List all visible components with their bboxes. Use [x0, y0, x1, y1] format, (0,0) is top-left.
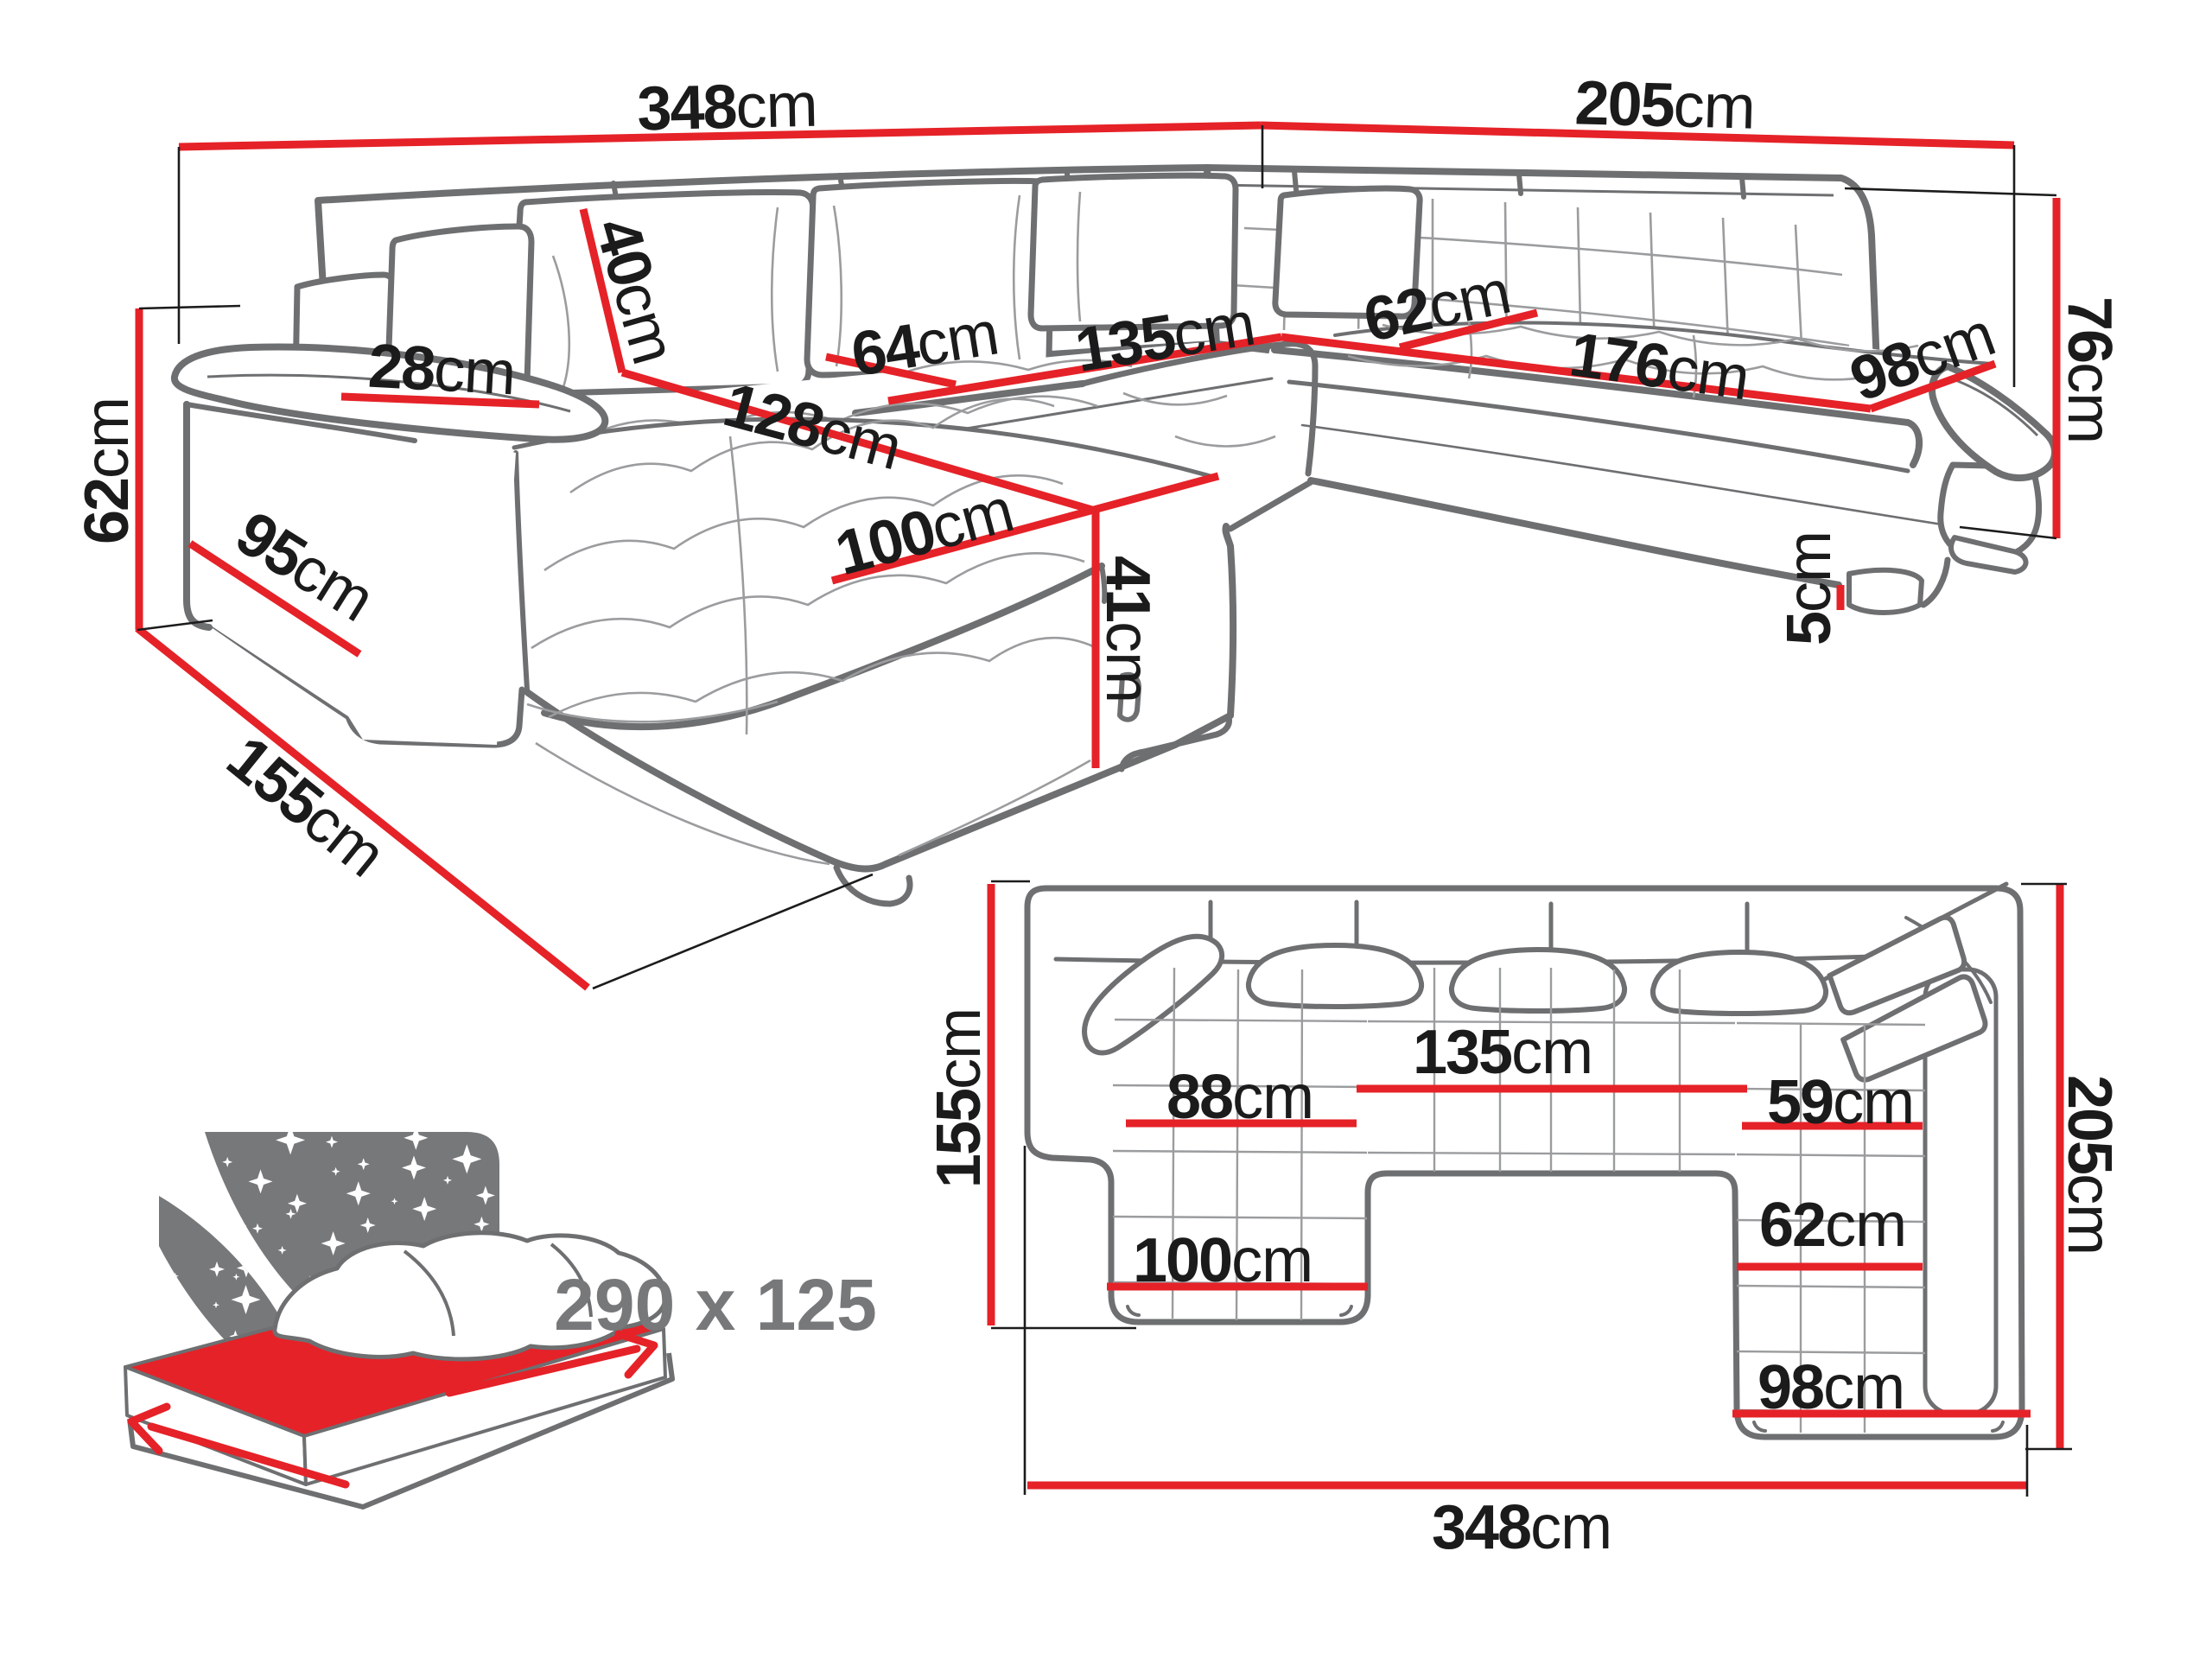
svg-text:28cm: 28cm	[366, 332, 517, 409]
svg-text:98cm: 98cm	[1758, 1353, 1904, 1422]
svg-text:62cm: 62cm	[1759, 1191, 1906, 1260]
svg-text:205cm: 205cm	[2055, 1075, 2124, 1255]
svg-text:5cm: 5cm	[1775, 531, 1844, 645]
svg-text:59cm: 59cm	[1767, 1068, 1914, 1137]
svg-text:135cm: 135cm	[1413, 1018, 1592, 1087]
svg-text:348cm: 348cm	[637, 71, 818, 144]
svg-text:205cm: 205cm	[1574, 68, 1756, 142]
svg-text:62cm: 62cm	[73, 397, 142, 544]
svg-text:76cm: 76cm	[2055, 296, 2124, 443]
svg-text:155cm: 155cm	[925, 1008, 994, 1188]
svg-text:88cm: 88cm	[1166, 1063, 1313, 1132]
svg-text:100cm: 100cm	[1133, 1226, 1313, 1295]
svg-text:348cm: 348cm	[1432, 1493, 1611, 1562]
svg-text:290 x 125: 290 x 125	[554, 1264, 877, 1345]
svg-text:41cm: 41cm	[1093, 556, 1162, 702]
